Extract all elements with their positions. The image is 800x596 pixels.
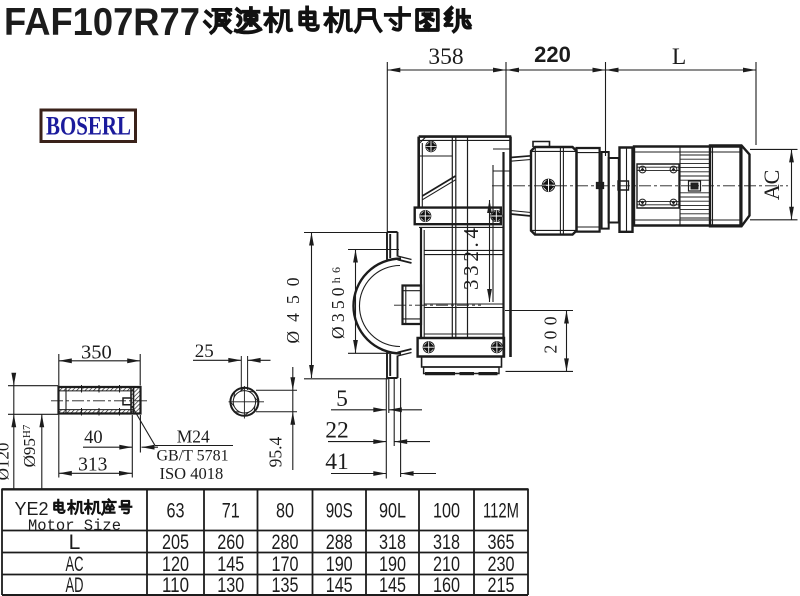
- svg-text:AC: AC: [759, 170, 784, 201]
- svg-text:205: 205: [162, 531, 189, 554]
- svg-text:190: 190: [326, 553, 353, 576]
- svg-text:280: 280: [272, 531, 299, 554]
- svg-text:71: 71: [222, 500, 240, 523]
- svg-text:BOSERL: BOSERL: [46, 111, 131, 141]
- svg-text:210: 210: [433, 553, 460, 576]
- svg-text:L: L: [69, 531, 81, 554]
- svg-text:110: 110: [162, 574, 189, 596]
- svg-text:41: 41: [325, 449, 349, 475]
- svg-text:288: 288: [326, 531, 353, 554]
- svg-text:332.4: 332.4: [459, 228, 483, 291]
- svg-text:170: 170: [272, 553, 299, 576]
- svg-text:ISO 4018: ISO 4018: [160, 464, 224, 483]
- svg-text:GB/T 5781: GB/T 5781: [157, 448, 229, 465]
- svg-text:260: 260: [217, 531, 244, 554]
- svg-text:313: 313: [78, 455, 107, 476]
- svg-text:145: 145: [326, 574, 353, 596]
- svg-text:112M: 112M: [483, 500, 519, 523]
- svg-text:135: 135: [272, 574, 299, 596]
- svg-text:230: 230: [488, 553, 515, 576]
- svg-text:22: 22: [325, 418, 349, 444]
- svg-text:318: 318: [433, 531, 460, 554]
- svg-text:100: 100: [433, 500, 460, 523]
- svg-text:90L: 90L: [379, 500, 406, 523]
- svg-text:160: 160: [433, 574, 460, 596]
- svg-text:90S: 90S: [326, 500, 353, 523]
- svg-text:M24: M24: [177, 427, 210, 447]
- svg-text:63: 63: [167, 500, 185, 523]
- svg-text:40: 40: [84, 428, 103, 448]
- svg-text:130: 130: [217, 574, 244, 596]
- svg-text:318: 318: [379, 531, 406, 554]
- svg-text:215: 215: [488, 574, 515, 596]
- svg-text:358: 358: [428, 44, 463, 70]
- svg-text:Ø120: Ø120: [0, 443, 13, 481]
- svg-text:AD: AD: [66, 574, 84, 596]
- svg-text:80: 80: [276, 500, 294, 523]
- svg-text:145: 145: [217, 553, 244, 576]
- svg-text:AC: AC: [66, 553, 84, 576]
- svg-text:FAF107R77: FAF107R77: [4, 1, 200, 44]
- svg-text:5: 5: [336, 386, 348, 412]
- svg-text:145: 145: [379, 574, 406, 596]
- svg-text:190: 190: [379, 553, 406, 576]
- svg-text:365: 365: [488, 531, 515, 554]
- svg-text:95.4: 95.4: [266, 436, 286, 467]
- svg-text:120: 120: [162, 553, 189, 576]
- svg-text:L: L: [672, 44, 686, 70]
- svg-text:200: 200: [541, 316, 561, 353]
- svg-text:YE2: YE2: [15, 499, 49, 519]
- svg-text:25: 25: [195, 341, 214, 362]
- svg-text:220: 220: [534, 42, 571, 67]
